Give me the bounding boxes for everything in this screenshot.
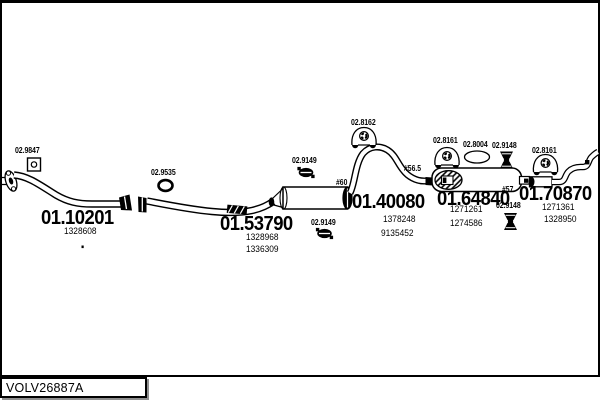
oe-ref: 1328950 — [544, 215, 577, 225]
diameter-label: #60 — [336, 179, 347, 187]
fitting-label: 02.8161 — [532, 146, 557, 155]
stray-mark — [82, 246, 84, 249]
diameter-label: #56.5 — [404, 165, 421, 173]
oe-ref: 1378248 — [383, 215, 416, 225]
o-ring-icon — [159, 180, 173, 191]
square-gasket-icon — [28, 158, 41, 171]
fitting-label: 02.9148 — [492, 141, 517, 150]
rubber-hanger-icon — [533, 155, 557, 176]
oe-ref: 1271261 — [450, 205, 483, 215]
drawing-code: VOLV26887A — [6, 381, 84, 395]
oe-ref: 1274586 — [450, 219, 483, 229]
center-muffler — [269, 187, 352, 209]
clamp-icon — [500, 152, 513, 169]
oe-ref: 1271361 — [542, 203, 575, 213]
oval-gasket-icon — [465, 151, 490, 163]
fitting-label: 02.9149 — [292, 156, 317, 165]
drawing-code-box: VOLV26887A — [0, 377, 147, 398]
fitting-label: 02.8004 — [463, 140, 488, 149]
fitting-label: 02.9149 — [311, 218, 336, 227]
oe-ref: 1328968 — [246, 233, 279, 243]
fitting-label: 02.8162 — [351, 118, 376, 127]
fitting-label: 02.9847 — [15, 146, 40, 155]
clamp-icon — [297, 167, 314, 178]
clamp-icon — [504, 213, 517, 230]
fitting-label: 02.8161 — [433, 136, 458, 145]
fitting-label: 02.9535 — [151, 168, 176, 177]
oe-ref: 9135452 — [381, 229, 414, 239]
oe-ref: 1336309 — [246, 245, 279, 255]
rubber-hanger-icon — [352, 128, 376, 149]
rubber-hanger-icon — [435, 148, 459, 169]
clamp-icon — [316, 228, 333, 239]
part-number-mid-silencer: 01.40080 — [352, 192, 425, 213]
oe-ref: 1328608 — [64, 227, 97, 237]
